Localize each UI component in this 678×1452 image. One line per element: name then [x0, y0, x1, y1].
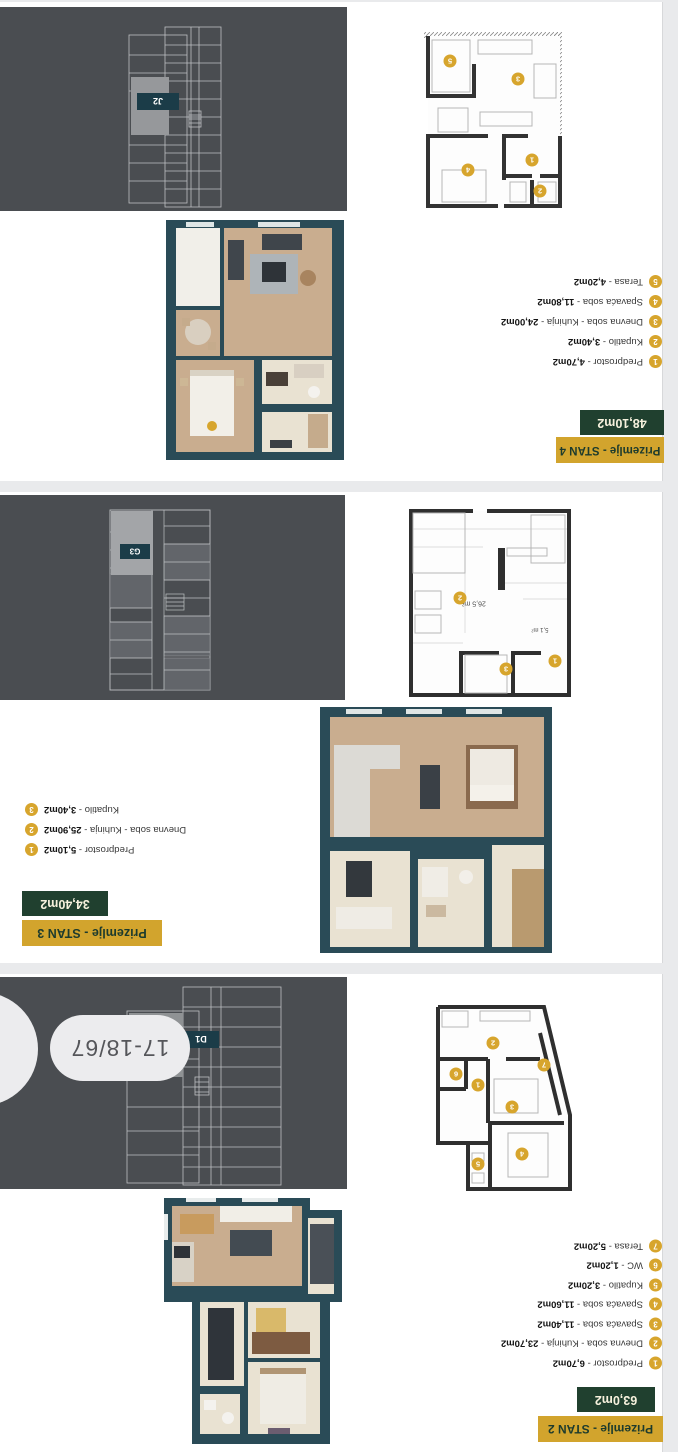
floor-plan-2d-svg: 26,5 m² 5,1 m² 2 3 1 — [403, 503, 577, 703]
unit-code-text: J2 — [153, 96, 163, 106]
room-area: 23,70m2 — [501, 1338, 539, 1349]
highlighted-unit — [111, 511, 153, 575]
plan-room-marker: 2 — [538, 186, 542, 195]
room-number-badge: 3 — [25, 804, 38, 817]
room-legend-list: 1Predprostor - 6,70m22Dnevna soba - Kuhi… — [490, 1236, 662, 1373]
room-name: Spavaća soba — [583, 1318, 643, 1329]
room-area: 3,20m2 — [568, 1279, 600, 1290]
building-key-plan-svg: J2 — [125, 25, 225, 210]
room-number-badge: 1 — [649, 1356, 662, 1369]
room-label: Dnevna soba - Kuhinja - 23,70m2 — [501, 1338, 643, 1349]
room-label: Terasa - 4,20m2 — [574, 277, 643, 288]
room-list-item: Kupatilo - 3,40m23 — [25, 800, 215, 820]
apartment-title-badge: Prizemlje - STAN 2 — [538, 1416, 663, 1442]
floor-plan-2d-svg: 2 7 6 1 3 4 5 — [428, 993, 578, 1195]
room-label: Predprostor - 5,10m2 — [44, 845, 134, 856]
room-area: 25,90m2 — [44, 825, 82, 836]
room-label: Predprostor - 6,70m2 — [553, 1357, 643, 1368]
room-list-item: 3Spavaća soba - 11,40m2 — [490, 1314, 662, 1334]
apartment-badges: Prizemlje - STAN 3 34,40m2 — [22, 891, 162, 946]
room-list-item: 6WC - 1,20m2 — [490, 1256, 662, 1276]
room-legend-list: Predprostor - 5,10m21Dnevna soba - Kuhin… — [25, 800, 215, 860]
room-list-item: Predprostor - 5,10m21 — [25, 840, 215, 860]
page-indicator-pill[interactable]: 17-18/67 — [50, 1015, 190, 1081]
plan-room-marker: 2 — [458, 593, 462, 602]
apartment-area-badge: 48,10m2 — [580, 410, 664, 435]
apartment-area-badge: 34,40m2 — [22, 891, 108, 916]
room-number-badge: 6 — [649, 1259, 662, 1272]
plan-room-marker: 6 — [454, 1069, 458, 1078]
room-number-badge: 4 — [649, 296, 662, 309]
apartment-badges: Prizemlje - STAN 2 63,0m2 — [538, 1387, 663, 1442]
room-area: 11,80m2 — [537, 297, 574, 308]
room-label: Kupatilo - 3,40m2 — [44, 805, 119, 816]
plan-room-marker: 1 — [530, 155, 534, 164]
room-label: Kupatilo - 3,20m2 — [568, 1279, 643, 1290]
room-list-item: 2Dnevna soba - Kuhinja - 23,70m2 — [490, 1334, 662, 1354]
floating-nav-circle[interactable] — [0, 992, 38, 1106]
room-number-badge: 4 — [649, 1298, 662, 1311]
room-area: 24,00m2 — [501, 317, 539, 328]
room-area: 11,60m2 — [537, 1299, 574, 1310]
apartment-title-badge: Prizemlje - STAN 4 — [556, 437, 664, 463]
room-legend-list: 1Predprostor - 4,70m22Kupatilo - 3,40m23… — [470, 272, 662, 372]
room-list-item: 7Terasa - 5,20m2 — [490, 1236, 662, 1256]
floor-plan-3d-render-svg — [316, 701, 557, 958]
room-name: Terasa — [614, 1240, 643, 1251]
room-number-badge: 3 — [649, 316, 662, 329]
room-list-item: 1Predprostor - 6,70m2 — [490, 1353, 662, 1373]
plan-room-marker: 3 — [510, 1102, 514, 1111]
room-number-badge: 2 — [649, 336, 662, 349]
key-plan-panel: G3 — [0, 495, 345, 700]
room-area: 5,10m2 — [44, 845, 76, 856]
room-list-item: 3Dnevna soba - Kuhinja - 24,00m2 — [470, 312, 662, 332]
room-list-item: 4Spavaća soba - 11,80m2 — [470, 292, 662, 312]
key-plan-panel: D1 17-18/67 — [0, 977, 347, 1189]
plan-room-marker: 5 — [448, 56, 452, 65]
room-number-badge: 7 — [649, 1239, 662, 1252]
room-name: WC — [627, 1260, 643, 1271]
plan-room-marker: 2 — [491, 1038, 495, 1047]
room-number-badge: 5 — [649, 1278, 662, 1291]
room-area: 1,20m2 — [586, 1260, 618, 1271]
plan-room-marker: 5 — [476, 1159, 480, 1168]
room-label: Predprostor - 4,70m2 — [553, 357, 643, 368]
unit-code-text: G3 — [129, 547, 140, 556]
room-area: 3,40m2 — [44, 805, 76, 816]
page-stan2: D1 17-18/67 2 — [0, 974, 663, 1452]
room-name: Dnevna soba - Kuhinja — [547, 317, 643, 328]
room-label: Spavaća soba - 11,80m2 — [537, 297, 643, 308]
room-area: 11,40m2 — [537, 1318, 574, 1329]
building-key-plan-svg: G3 — [108, 508, 212, 693]
floor-plan-3d-render-svg — [156, 1190, 348, 1447]
room-list-item: 2Kupatilo - 3,40m2 — [470, 332, 662, 352]
key-plan-panel: J2 — [0, 7, 347, 211]
apartment-area-badge: 63,0m2 — [577, 1387, 655, 1412]
room-label: Dnevna soba - Kuhinja - 24,00m2 — [501, 317, 643, 328]
room-list-item: 4Spavaća soba - 11,60m2 — [490, 1295, 662, 1315]
plan-room-marker: 3 — [504, 664, 508, 673]
room-area: 4,70m2 — [553, 357, 585, 368]
room-area: 5,20m2 — [574, 1240, 606, 1251]
document-canvas: J2 — [0, 0, 678, 1452]
room-label: Spavaća soba - 11,40m2 — [537, 1318, 643, 1329]
room-name: Terasa — [614, 277, 643, 288]
room-area: 3,40m2 — [568, 337, 600, 348]
room-name: Predprostor — [593, 357, 643, 368]
page-stan4: J2 — [0, 2, 663, 481]
room-label: WC - 1,20m2 — [586, 1260, 643, 1271]
room-name: Kupatilo — [609, 1279, 643, 1290]
room-label: Kupatilo - 3,40m2 — [568, 337, 643, 348]
room-list-item: 5Terasa - 4,20m2 — [470, 272, 662, 292]
room-name: Spavaća soba — [583, 297, 643, 308]
plan-room-marker: 1 — [476, 1080, 480, 1089]
room-name: Predprostor — [85, 845, 135, 856]
room-name: Dnevna soba - Kuhinja — [90, 825, 186, 836]
room-number-badge: 1 — [649, 356, 662, 369]
apartment-badges: Prizemlje - STAN 4 48,10m2 — [556, 410, 664, 463]
plan-room-marker: 1 — [553, 656, 557, 665]
room-name: Kupatilo — [85, 805, 119, 816]
plan-room-marker: 7 — [542, 1060, 546, 1069]
room-name: Dnevna soba - Kuhinja — [547, 1338, 643, 1349]
room-area: 6,70m2 — [553, 1357, 585, 1368]
floor-plan-2d-svg: 5 3 4 1 2 — [418, 24, 577, 214]
room-number-badge: 3 — [649, 1317, 662, 1330]
room-label: Dnevna soba - Kuhinja - 25,90m2 — [44, 825, 186, 836]
floor-plan-3d-render-svg — [162, 214, 348, 464]
room-number-badge: 2 — [25, 824, 38, 837]
room-list-item: 5Kupatilo - 3,20m2 — [490, 1275, 662, 1295]
page-stan3: G3 26,5 m² 5,1 m² — [0, 492, 663, 963]
room-list-item: 1Predprostor - 4,70m2 — [470, 352, 662, 372]
room-number-badge: 1 — [25, 844, 38, 857]
room-name: Spavaća soba — [583, 1299, 643, 1310]
plan-room-marker: 3 — [516, 74, 520, 83]
room-label: Spavaća soba - 11,60m2 — [537, 1299, 643, 1310]
room-name: Predprostor — [593, 1357, 643, 1368]
unit-code-text: D1 — [195, 1034, 207, 1044]
room-label: Terasa - 5,20m2 — [574, 1240, 643, 1251]
room-area: 4,20m2 — [574, 277, 606, 288]
room-list-item: Dnevna soba - Kuhinja - 25,90m22 — [25, 820, 215, 840]
apartment-title-badge: Prizemlje - STAN 3 — [22, 920, 162, 946]
room-name: Kupatilo — [609, 337, 643, 348]
page-indicator-text: 17-18/67 — [71, 1035, 170, 1062]
room-number-badge: 5 — [649, 276, 662, 289]
plan-area-label: 5,1 m² — [531, 626, 548, 632]
room-number-badge: 2 — [649, 1337, 662, 1350]
